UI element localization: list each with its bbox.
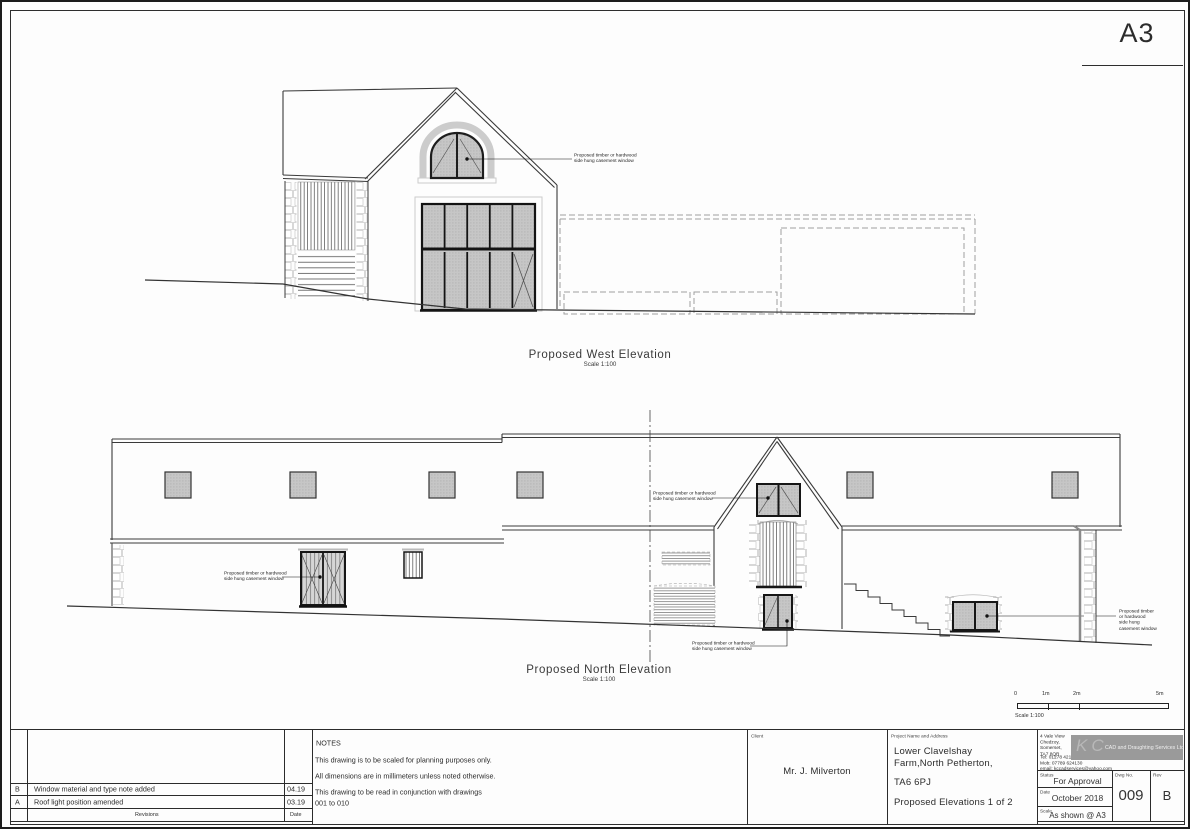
scalebar-tick-0: 0 <box>1014 690 1017 697</box>
west-arch-window <box>418 125 572 183</box>
dwg-no-label: Dwg No. <box>1115 772 1133 778</box>
revisions-footer-label: Revisions <box>135 811 159 818</box>
revision-date: 03.19 <box>287 798 305 808</box>
timber-slats <box>298 182 355 250</box>
scalebar-tick-5m: 5m <box>1156 690 1164 697</box>
scale-bar-division <box>1079 704 1080 710</box>
west-left-wing <box>285 181 368 301</box>
notes-line: All dimensions are in millimeters unless… <box>315 772 495 782</box>
stone-quoins <box>286 182 297 299</box>
north-caption: Proposed North Elevation Scale 1:100 <box>479 664 719 687</box>
rooflight <box>847 472 873 498</box>
revisions-date-label: Date <box>290 811 302 818</box>
notes-heading: NOTES <box>316 739 341 749</box>
scale-value: As shown @ A3 <box>1043 811 1112 820</box>
west-title: Proposed West Elevation <box>480 349 720 361</box>
scalebar-label: Scale 1:100 <box>1015 712 1044 719</box>
stone-quoins <box>357 182 368 301</box>
north-steps <box>844 584 950 636</box>
row-line <box>1037 806 1112 807</box>
notes-line: This drawing to be read in conjunction w… <box>315 788 482 809</box>
revision-date: 04.19 <box>287 785 305 795</box>
company-logo: KC CAD and Draughting Services Ltd <box>1071 735 1183 760</box>
revision-letter: B <box>15 785 20 795</box>
scale-bar <box>1017 703 1169 709</box>
rooflight <box>429 472 455 498</box>
annotation-gable-door: Proposed timber or hardwood side hung ca… <box>692 640 755 651</box>
rooflight <box>165 472 191 498</box>
dwg-no-value: 009 <box>1112 787 1150 804</box>
annotation-west-window: Proposed timber or hardwood side hung ca… <box>574 152 637 163</box>
annotation-right-window: Proposed timber or hardwood side hung ca… <box>1119 608 1158 631</box>
drawing-sheet: A3 <box>0 0 1190 829</box>
row-line <box>1037 821 1184 822</box>
annotation-left-door: Proposed timber or hardwood side hung ca… <box>224 570 287 581</box>
rev-label: Rev <box>1153 772 1161 778</box>
rev-value: B <box>1150 788 1184 803</box>
north-roof <box>110 434 1122 543</box>
west-caption: Proposed West Elevation Scale 1:100 <box>480 349 720 372</box>
project-line: Lower Clavelshay <box>894 746 972 757</box>
scalebar-tick-2m: 2m <box>1073 690 1081 697</box>
revision-letter: A <box>15 798 20 808</box>
north-right-corner <box>1074 526 1096 643</box>
client-name: Mr. J. Milverton <box>747 766 887 777</box>
row-line <box>1037 787 1112 788</box>
date-value: October 2018 <box>1043 793 1112 803</box>
north-gable-door <box>750 595 798 646</box>
west-glazed-screen <box>415 197 542 311</box>
project-drawing-title: Proposed Elevations 1 of 2 <box>894 797 1013 808</box>
scale-bar-division <box>1048 704 1049 710</box>
row-line <box>10 783 312 784</box>
stone-quoins <box>1084 531 1096 641</box>
stone-quoins <box>113 545 124 605</box>
project-label: Project Name and Address <box>891 733 948 739</box>
north-left-corner <box>112 543 124 606</box>
divider <box>312 730 313 824</box>
format-box-line <box>1082 65 1183 66</box>
revision-description: Roof light position amended <box>34 798 123 808</box>
north-louver-panels <box>654 552 715 625</box>
west-adjacent-building-dashed <box>560 215 975 314</box>
logo-text: CAD and Draughting Services Ltd <box>1105 744 1184 750</box>
row-line <box>10 821 312 822</box>
project-line: Farm,North Petherton, <box>894 758 993 769</box>
revision-description: Window material and type note added <box>34 785 155 795</box>
stone-quoins <box>796 520 807 587</box>
client-label: Client <box>751 733 763 739</box>
north-rooflights <box>165 472 1078 498</box>
divider <box>747 730 748 824</box>
north-slatted-opening <box>749 520 807 587</box>
sheet-format-label: A3 <box>1100 18 1174 49</box>
title-block: B Window material and type note added 04… <box>10 729 1184 823</box>
stone-quoins <box>749 520 760 587</box>
divider <box>1037 730 1038 824</box>
west-scale-note: Scale 1:100 <box>526 361 675 368</box>
rooflight <box>517 472 543 498</box>
rooflight <box>290 472 316 498</box>
rooflight <box>1052 472 1078 498</box>
north-title: Proposed North Elevation <box>479 664 719 676</box>
scalebar-tick-1m: 1m <box>1042 690 1050 697</box>
logo-monogram: KC <box>1076 736 1108 756</box>
annotation-gable-window: Proposed timber or hardwood side hung ca… <box>653 490 716 501</box>
north-left-barn-door <box>282 550 348 607</box>
divider <box>887 730 888 824</box>
north-scale-note: Scale 1:100 <box>525 676 674 683</box>
project-postcode: TA6 6PJ <box>894 777 931 788</box>
north-elevation-drawing <box>62 405 1162 670</box>
north-small-window <box>402 550 424 579</box>
row-line <box>1037 770 1184 771</box>
west-elevation-drawing <box>137 78 987 328</box>
notes-line: This drawing is to be scaled for plannin… <box>315 756 492 766</box>
status-value: For Approval <box>1043 776 1112 786</box>
